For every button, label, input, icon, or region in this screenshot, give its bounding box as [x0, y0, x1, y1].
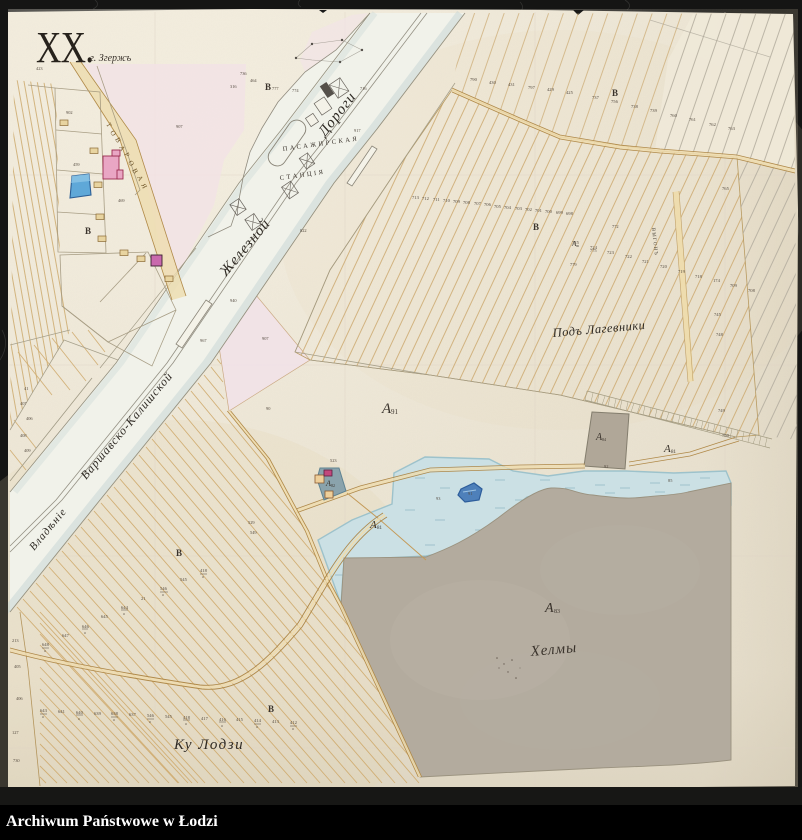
svg-text:546: 546: [160, 586, 168, 591]
svg-text:701: 701: [535, 208, 543, 213]
svg-text:722: 722: [625, 254, 633, 259]
svg-text:638: 638: [111, 711, 119, 716]
svg-text:41: 41: [24, 386, 28, 391]
svg-text:415: 415: [236, 717, 244, 722]
svg-text:738: 738: [631, 104, 639, 109]
svg-text:720: 720: [660, 264, 668, 269]
svg-text:405: 405: [14, 664, 21, 669]
svg-text:B: B: [268, 704, 274, 714]
svg-text:736: 736: [240, 71, 247, 76]
svg-text:B: B: [265, 82, 271, 92]
svg-text:174: 174: [713, 278, 721, 283]
svg-text:B: B: [612, 88, 618, 98]
svg-text:464: 464: [250, 78, 257, 83]
svg-text:г. Згержъ: г. Згержъ: [90, 53, 131, 64]
svg-text:703: 703: [515, 206, 523, 211]
svg-text:409: 409: [24, 448, 31, 453]
svg-text:91: 91: [468, 491, 472, 496]
svg-text:907: 907: [176, 124, 183, 129]
svg-text:529: 529: [248, 520, 255, 525]
svg-text:708: 708: [748, 288, 756, 293]
svg-text:523: 523: [330, 458, 337, 463]
svg-text:B: B: [176, 548, 182, 558]
svg-text:418: 418: [183, 715, 191, 720]
svg-text:907: 907: [262, 336, 269, 341]
svg-text:779: 779: [570, 262, 577, 267]
svg-text:545: 545: [180, 577, 188, 582]
svg-text:777: 777: [272, 86, 279, 91]
svg-text:B: B: [85, 226, 91, 236]
svg-text:425: 425: [566, 90, 574, 95]
svg-text:760: 760: [670, 113, 678, 118]
svg-text:408: 408: [20, 433, 27, 438]
svg-text:716: 716: [360, 86, 367, 91]
svg-text:917: 917: [354, 128, 361, 133]
svg-text:902: 902: [66, 110, 73, 115]
svg-text:81: 81: [671, 450, 677, 455]
svg-text:707: 707: [474, 201, 482, 206]
svg-text:713: 713: [412, 195, 420, 200]
svg-text:761: 761: [689, 117, 697, 122]
svg-text:700: 700: [545, 209, 553, 214]
svg-text:967: 967: [200, 338, 207, 343]
svg-text:Ку Лодзи: Ку Лодзи: [173, 737, 244, 753]
svg-text:83: 83: [554, 609, 560, 615]
svg-text:92: 92: [604, 464, 608, 469]
svg-text:413: 413: [272, 719, 280, 724]
svg-text:431: 431: [508, 82, 516, 87]
svg-text:718: 718: [695, 274, 703, 279]
svg-text:414: 414: [254, 718, 262, 723]
svg-text:546: 546: [147, 713, 155, 718]
svg-text:750: 750: [722, 433, 730, 438]
svg-text:21: 21: [141, 596, 146, 601]
svg-text:706: 706: [484, 202, 492, 207]
svg-text:723: 723: [607, 250, 615, 255]
svg-text:710: 710: [443, 198, 451, 203]
svg-text:84: 84: [602, 437, 606, 442]
svg-text:213: 213: [12, 638, 19, 643]
svg-text:775: 775: [590, 248, 597, 253]
svg-text:737: 737: [592, 95, 600, 100]
svg-text:127: 127: [12, 730, 19, 735]
svg-text:721: 721: [642, 259, 650, 264]
svg-text:96: 96: [576, 244, 580, 248]
svg-text:637: 637: [129, 712, 137, 717]
svg-text:797: 797: [528, 85, 536, 90]
svg-text:545: 545: [165, 714, 173, 719]
svg-text:749: 749: [718, 408, 726, 413]
svg-text:765: 765: [722, 186, 730, 191]
svg-text:645: 645: [101, 614, 109, 619]
svg-text:699: 699: [556, 210, 564, 215]
svg-text:705: 705: [494, 204, 502, 209]
svg-text:316: 316: [230, 84, 237, 89]
svg-text:648: 648: [42, 642, 50, 647]
svg-text:756: 756: [611, 99, 619, 104]
svg-text:639: 639: [94, 711, 102, 716]
svg-text:644: 644: [121, 605, 129, 610]
svg-text:702: 702: [525, 207, 533, 212]
svg-text:641: 641: [58, 709, 66, 714]
svg-text:417: 417: [201, 716, 209, 721]
svg-text:643: 643: [40, 708, 48, 713]
svg-text:790: 790: [470, 77, 478, 82]
svg-text:745: 745: [714, 312, 722, 317]
svg-text:709: 709: [730, 283, 738, 288]
svg-text:719: 719: [678, 269, 686, 274]
svg-text:A: A: [544, 601, 554, 616]
svg-text:704: 704: [504, 205, 512, 210]
svg-text:730: 730: [13, 758, 20, 763]
svg-text:412: 412: [290, 720, 298, 725]
svg-text:940: 940: [230, 298, 237, 303]
svg-text:549: 549: [250, 530, 257, 535]
svg-text:712: 712: [422, 196, 430, 201]
svg-text:406: 406: [16, 696, 23, 701]
svg-text:709: 709: [453, 199, 461, 204]
svg-text:762: 762: [709, 122, 717, 127]
svg-text:640: 640: [76, 710, 84, 715]
svg-text:XX.: XX.: [36, 22, 93, 72]
svg-text:646: 646: [82, 624, 90, 629]
svg-text:416: 416: [219, 717, 227, 722]
svg-text:774: 774: [292, 88, 299, 93]
svg-text:459: 459: [73, 162, 80, 167]
svg-text:B: B: [533, 222, 539, 232]
svg-text:647: 647: [62, 633, 70, 638]
svg-text:429: 429: [547, 87, 555, 92]
svg-text:A: A: [369, 519, 377, 531]
svg-text:406: 406: [26, 416, 33, 421]
svg-text:708: 708: [463, 200, 471, 205]
svg-text:739: 739: [650, 108, 658, 113]
svg-text:407: 407: [20, 401, 27, 406]
svg-text:748: 748: [716, 332, 724, 337]
svg-text:698: 698: [566, 211, 574, 216]
svg-text:763: 763: [728, 126, 736, 131]
svg-text:430: 430: [489, 80, 497, 85]
svg-text:82: 82: [331, 483, 335, 488]
svg-text:91: 91: [391, 408, 399, 416]
svg-text:469: 469: [118, 198, 125, 203]
svg-text:418: 418: [200, 568, 208, 573]
svg-text:81: 81: [377, 526, 383, 531]
svg-text:822: 822: [300, 228, 307, 233]
svg-text:A: A: [663, 443, 671, 455]
svg-text:711: 711: [433, 197, 440, 202]
svg-text:772: 772: [612, 224, 619, 229]
svg-text:Archiwum Państwowe w Łodzi: Archiwum Państwowe w Łodzi: [6, 813, 218, 830]
